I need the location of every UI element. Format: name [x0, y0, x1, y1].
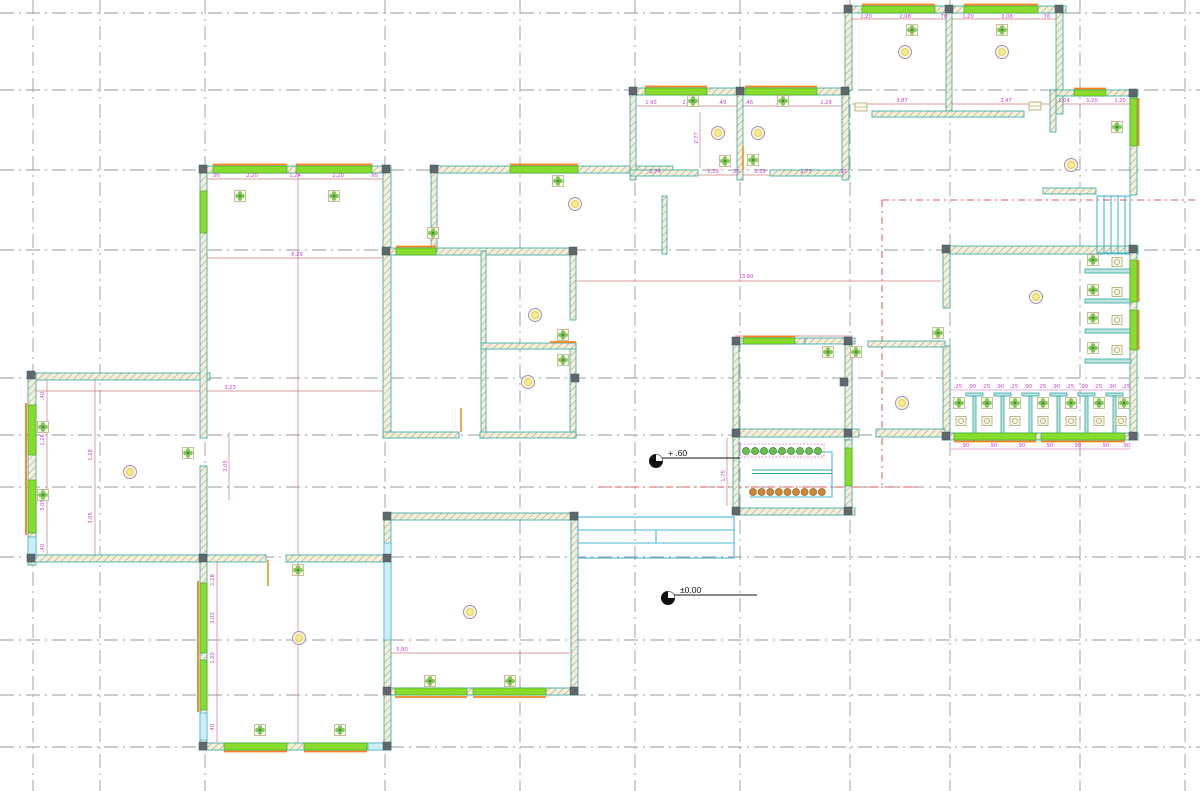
ceiling-fan-icon [823, 347, 834, 358]
drawing-element [239, 195, 242, 198]
dimension-label: 2,77 [800, 169, 812, 175]
drawing-element [1070, 402, 1073, 405]
window-glass [213, 166, 287, 173]
wall-junction [1055, 5, 1063, 13]
ceiling-fan-icon [425, 676, 436, 687]
ceiling-fan-icon [720, 156, 731, 167]
partition-wall [973, 396, 976, 434]
ceiling-fan-icon [1088, 313, 1099, 324]
wall-segment [872, 111, 1024, 117]
drawing-element [1092, 289, 1095, 292]
dimension-label: .95 [212, 173, 220, 179]
ceiling-fan-icon [335, 725, 346, 736]
wall-segment [737, 88, 743, 180]
dimension-label: 2,20 [332, 173, 344, 179]
drawing-element [715, 130, 722, 137]
window-glass [28, 405, 36, 455]
dimension-label: 3,87 [896, 98, 908, 104]
dimension-label: 2,20 [246, 173, 258, 179]
drawing-element [755, 130, 762, 137]
lamp-icon [712, 127, 725, 140]
partition-wall [1050, 393, 1067, 396]
wall-segment [570, 248, 576, 320]
drawing-element [1001, 29, 1004, 32]
drawing-element [1068, 162, 1075, 169]
window-glass [954, 433, 1036, 440]
drawing-element [1014, 402, 1017, 405]
dimension-label: 2,08 [899, 14, 911, 20]
wall-junction [841, 87, 849, 95]
drawing-element [1092, 347, 1095, 350]
wall-junction [629, 87, 637, 95]
planter-circle [806, 448, 813, 455]
ceiling-fan-icon [553, 176, 564, 187]
wall-segment [28, 555, 266, 562]
window-glass [845, 448, 852, 486]
drawing-element [1116, 126, 1119, 129]
planter-circle [743, 448, 750, 455]
partition-wall [1085, 269, 1131, 273]
wall-junction [382, 247, 390, 255]
drawing-element [532, 312, 539, 319]
dimension-label: 3,05 [223, 460, 229, 472]
wall-segment [842, 88, 849, 180]
wall-segment [571, 513, 578, 695]
dimension-label: .90 [1108, 384, 1116, 390]
drawing-element [986, 402, 989, 405]
ceiling-fan-icon [933, 328, 944, 339]
drawing-element [432, 232, 435, 235]
dimension-label: .25 [1094, 384, 1102, 390]
dimension-label: 6,29 [291, 252, 303, 258]
ceiling-fan-icon [1119, 398, 1130, 409]
dimension-label: .25 [1066, 384, 1074, 390]
window-glass [200, 583, 207, 653]
lamp-icon [1065, 159, 1078, 172]
dimension-label: .90 [1080, 384, 1088, 390]
cyan-window [200, 713, 207, 740]
dimension-label: 2,77 [694, 132, 700, 144]
dimension-label: 1,93 [645, 100, 657, 106]
level-markers-layer: + .60 ±0.00 [650, 448, 758, 605]
wall-junction [942, 432, 950, 440]
dimension-label: 3,05 [88, 512, 94, 524]
dimension-label: 1,20 [860, 14, 872, 20]
drawing-element [1123, 402, 1126, 405]
ceiling-fan-icon [183, 448, 194, 459]
wall-segment [286, 555, 388, 562]
dimension-label: .76 [939, 14, 947, 20]
planter-circle [815, 448, 822, 455]
ceiling-fan-icon [851, 347, 862, 358]
dimension-label: .90 [1017, 443, 1025, 449]
drawing-element [656, 455, 663, 462]
drawing-element [525, 379, 532, 386]
drawing-element [1092, 259, 1095, 262]
partition-wall [994, 393, 1011, 396]
drawing-element [958, 402, 961, 405]
wall-segment [1050, 90, 1056, 132]
drawing-element [429, 680, 432, 683]
wall-segment [480, 432, 576, 438]
lamp-icon [996, 46, 1009, 59]
drawing-element [1098, 402, 1101, 405]
wall-junction [1129, 89, 1137, 97]
drawing-element [187, 452, 190, 455]
planter-circle [770, 448, 777, 455]
dimension-label: 1,29 [754, 169, 766, 175]
wall-junction [383, 687, 391, 695]
dimension-label: 13,80 [739, 274, 754, 280]
partition-wall [1106, 393, 1123, 396]
drawing-element [668, 592, 675, 599]
ceiling-fan-icon [997, 25, 1008, 36]
window-glass [645, 88, 707, 95]
partition-wall [1001, 396, 1004, 434]
dimension-label: .90 [1045, 443, 1053, 449]
wall-segment [630, 170, 698, 176]
drawing-element [557, 180, 560, 183]
dimension-label: 3,47 [1000, 98, 1012, 104]
drawing-element [999, 49, 1006, 56]
dimension-label: .49 [718, 100, 726, 106]
dimension-label: .46 [745, 100, 753, 106]
drawing-element [1116, 417, 1126, 426]
drawing-element [333, 195, 336, 198]
drawing-element [127, 469, 134, 476]
wall-segment [662, 196, 667, 254]
dimension-label: 1,28 [40, 434, 46, 446]
ceiling-fan-icon [1010, 398, 1021, 409]
wall-junction [945, 5, 953, 13]
ceiling-fan-icon [38, 422, 49, 433]
drawing-element [467, 609, 474, 616]
window-glass [1074, 90, 1106, 96]
window-glass [1041, 433, 1125, 440]
planter-circle [779, 448, 786, 455]
partition-wall [1057, 396, 1060, 434]
drawing-element [297, 569, 300, 572]
drawing-element [1112, 346, 1122, 355]
wall-segment [570, 343, 576, 438]
drawing-element [1092, 317, 1095, 320]
wall-junction [27, 554, 35, 562]
level-marker [662, 592, 758, 605]
ceiling-fan-icon [1066, 398, 1077, 409]
wall-segment [733, 429, 859, 437]
ceiling-fan-icon [1112, 122, 1123, 133]
cyan-window [368, 743, 384, 750]
partition-wall [1029, 396, 1032, 434]
wall-segment [868, 341, 945, 347]
drawing-element [562, 359, 565, 362]
wall-junction [199, 554, 207, 562]
window-glass [296, 166, 372, 173]
wall-junction [844, 5, 852, 13]
partition-wall [1022, 393, 1039, 396]
dimension-label: .25 [1038, 384, 1046, 390]
level-marker-label-plus60: + .60 [668, 448, 687, 458]
dimension-label: 1,20 [962, 14, 974, 20]
ceiling-fan-icon [255, 725, 266, 736]
wall-junction [942, 245, 950, 253]
wall-segment [1043, 188, 1096, 194]
wall-junction [736, 87, 744, 95]
wall-segment [733, 338, 739, 515]
dimension-label: 1,20 [1114, 98, 1126, 104]
wall-segment [431, 166, 437, 252]
ceiling-fan-icon [558, 330, 569, 341]
partition-wall [1085, 329, 1131, 333]
drawing-element [937, 332, 940, 335]
dimension-label: .76 [1042, 14, 1050, 20]
dimension-label: 2,74 [649, 169, 661, 175]
planter-circle [767, 489, 774, 496]
planter-circle [758, 489, 765, 496]
wall-junction [570, 687, 578, 695]
floor-plan-drawing: 1,202,08.761,202,08.763,873,471,041,201,… [0, 0, 1200, 791]
toilet-icon [1112, 258, 1122, 267]
drawing-element [509, 680, 512, 683]
dimension-label: 1,28 [88, 449, 94, 461]
drawing-element [902, 49, 909, 56]
drawing-element [1112, 258, 1122, 267]
ceiling-fan-icon [558, 355, 569, 366]
floorplan-sheet: 1,202,08.761,202,08.763,873,471,041,201,… [0, 0, 1200, 791]
window-glass [200, 660, 207, 710]
window-glass [395, 688, 467, 695]
window-glass [1130, 260, 1137, 302]
wall-junction [382, 165, 390, 173]
toilet-icon [1112, 288, 1122, 297]
window-glass [1130, 98, 1137, 146]
planter-circle [788, 448, 795, 455]
planter-circle [784, 489, 791, 496]
toilet-icon [1066, 417, 1076, 426]
dimension-label: .90 [1101, 443, 1109, 449]
wall-junction [1129, 245, 1137, 253]
wall-segment [943, 246, 950, 308]
drawing-element [1033, 294, 1040, 301]
ceiling-fan-icon [293, 565, 304, 576]
toilet-icon [1038, 417, 1048, 426]
wall-junction [27, 371, 35, 379]
planter-circle [797, 448, 804, 455]
wall-segment [200, 466, 207, 558]
drawing-element [1112, 288, 1122, 297]
window-glass [510, 166, 578, 173]
dimension-label: .25 [954, 384, 962, 390]
ceiling-fan-icon [954, 398, 965, 409]
level-marker-label-zero: ±0.00 [680, 585, 701, 595]
planter-circle [818, 489, 825, 496]
wall-junction [569, 247, 577, 255]
partition-wall [1085, 299, 1131, 303]
switch-box-icon [1029, 102, 1041, 110]
dimension-label: 2,08 [1001, 14, 1013, 20]
ceiling-fan-icon [235, 191, 246, 202]
wall-segment [733, 508, 855, 515]
dimension-label: 3,03 [210, 612, 216, 624]
wall-junction [732, 507, 740, 515]
drawing-element [562, 334, 565, 337]
wall-junction [844, 337, 852, 345]
window-glass [304, 743, 367, 750]
dimension-label: 3,23 [224, 385, 236, 391]
drawing-element [692, 100, 695, 103]
dimension-label: 5,90 [396, 647, 408, 653]
wall-segment [28, 373, 36, 565]
partition-wall [1085, 396, 1088, 434]
dimension-label: .25 [982, 384, 990, 390]
wall-junction [571, 374, 579, 382]
wall-junction [732, 429, 740, 437]
lamp-icon [464, 606, 477, 619]
wall-junction [430, 165, 438, 173]
ceiling-fan-icon [38, 490, 49, 501]
ceiling-fan-icon [1088, 285, 1099, 296]
planter-circle [752, 448, 759, 455]
window-glass [473, 688, 546, 695]
dimension-label: 1,24 [289, 173, 301, 179]
drawing-element [42, 426, 45, 429]
window-glass [745, 88, 817, 95]
wall-junction [199, 742, 207, 750]
lamp-icon [293, 632, 306, 645]
dimension-label: .90 [961, 443, 969, 449]
toilet-icon [1112, 346, 1122, 355]
wall-segment [876, 429, 945, 437]
toilet-icon [1094, 417, 1104, 426]
drawing-element [982, 417, 992, 426]
dimension-label: .40 [210, 724, 216, 732]
wall-junction [840, 378, 848, 386]
level-marker [650, 455, 741, 468]
dimension-label: .25 [839, 169, 847, 175]
drawing-element [1038, 417, 1048, 426]
wall-segment [943, 346, 950, 440]
lamp-icon [522, 376, 535, 389]
dimension-label: .25 [1010, 384, 1018, 390]
dimension-label: 1,29 [707, 169, 719, 175]
lamp-icon [569, 198, 582, 211]
window-glass [964, 6, 1038, 13]
partition-wall [1085, 359, 1131, 363]
dimension-label: 1,28 [210, 574, 216, 586]
drawing-element [1112, 316, 1122, 325]
dimension-label: 1,75 [721, 470, 727, 482]
dimension-label: 1,20 [1086, 98, 1098, 104]
drawing-element [782, 100, 785, 103]
ceiling-fan-icon [1094, 398, 1105, 409]
ceiling-fan-icon [982, 398, 993, 409]
window-glass [224, 743, 287, 750]
dimension-label: .95 [370, 173, 378, 179]
drawing-element [339, 729, 342, 732]
wall-segment [383, 166, 391, 438]
wall-segment [383, 432, 459, 438]
dimension-label: .40 [40, 544, 46, 552]
planter-circle [750, 489, 757, 496]
toilet-icon [1112, 316, 1122, 325]
drawing-element [572, 201, 579, 208]
dimension-label: 1,20 [210, 652, 216, 664]
dimension-label: .90 [989, 443, 997, 449]
dimension-label: 1,04 [1058, 98, 1070, 104]
wall-segment [384, 513, 578, 520]
partition-wall [1078, 393, 1095, 396]
planter-circle [761, 448, 768, 455]
switch-box-icon [855, 103, 867, 111]
ceiling-fan-icon [778, 96, 789, 107]
wall-segment [946, 6, 952, 114]
dimension-label: 1,29 [820, 100, 832, 106]
ceiling-fan-icon [428, 228, 439, 239]
wall-junction [199, 165, 207, 173]
ceiling-fan-icon [748, 155, 759, 166]
dimension-label: .40 [40, 392, 46, 400]
toilet-icon [982, 417, 992, 426]
drawing-element [724, 160, 727, 163]
planter-circle [775, 489, 782, 496]
dimension-label: .90 [996, 384, 1004, 390]
wall-segment [30, 373, 210, 380]
ceiling-fan-icon [688, 96, 699, 107]
wall-junction [844, 429, 852, 437]
dimension-label: .90 [1052, 384, 1060, 390]
dimension-label: .25 [732, 169, 740, 175]
drawing-element [827, 351, 830, 354]
window-glass [743, 338, 795, 344]
ceiling-fan-icon [1088, 343, 1099, 354]
lamp-icon [124, 466, 137, 479]
wall-segment [630, 88, 636, 180]
lamp-icon [1030, 291, 1043, 304]
dimension-label: 3,05 [40, 499, 46, 511]
lamp-icon [752, 127, 765, 140]
planter-circle [810, 489, 817, 496]
dimension-label: .90 [1122, 443, 1130, 449]
lamp-icon [896, 397, 909, 410]
drawing-element [259, 729, 262, 732]
wall-junction [383, 742, 391, 750]
wall-junction [383, 554, 391, 562]
drawing-element [899, 400, 906, 407]
dimension-label: .90 [1024, 384, 1032, 390]
ceiling-fan-icon [329, 191, 340, 202]
wall-segment [845, 6, 852, 90]
dimension-label: .90 [968, 384, 976, 390]
drawing-element [296, 635, 303, 642]
drawing-element [956, 417, 966, 426]
planter-circle [793, 489, 800, 496]
wall-junction [844, 507, 852, 515]
toilet-icon [1010, 417, 1020, 426]
window-glass [28, 480, 36, 533]
wall-junction [383, 512, 391, 520]
wall-junction [732, 337, 740, 345]
window-glass [1130, 310, 1137, 350]
lamp-icon [529, 309, 542, 322]
drawing-element [752, 159, 755, 162]
toilet-icon [956, 417, 966, 426]
wall-junction [1129, 432, 1137, 440]
window-glass [862, 6, 935, 13]
ceiling-fan-icon [1088, 255, 1099, 266]
drawing-element [1066, 417, 1076, 426]
wall-junction [570, 512, 578, 520]
wall-segment [481, 343, 576, 349]
